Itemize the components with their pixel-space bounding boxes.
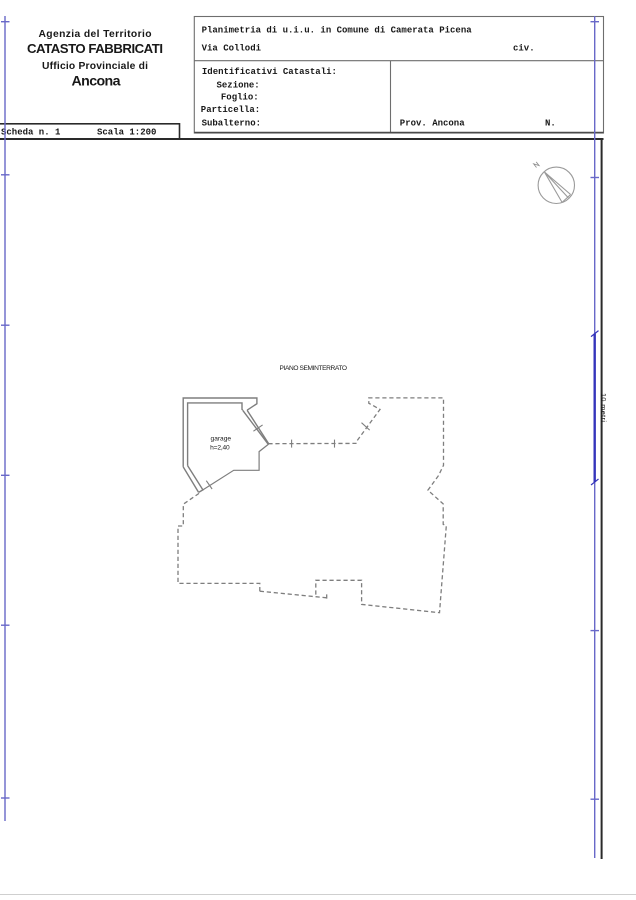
svg-text:Scheda n. 1: Scheda n. 1 xyxy=(1,127,61,137)
svg-text:garage: garage xyxy=(211,436,232,443)
svg-text:CATASTO FABBRICATI: CATASTO FABBRICATI xyxy=(27,41,163,56)
svg-text:h=2,40: h=2,40 xyxy=(210,445,230,452)
svg-text:Particella:: Particella: xyxy=(201,105,260,115)
svg-text:N.: N. xyxy=(545,119,556,129)
svg-text:Via Collodi: Via Collodi xyxy=(202,44,262,54)
svg-text:Agenzia del Territorio: Agenzia del Territorio xyxy=(39,29,152,40)
svg-text:Sezione:: Sezione: xyxy=(217,80,260,90)
svg-text:Subalterno:: Subalterno: xyxy=(202,119,261,129)
svg-text:Prov. Ancona: Prov. Ancona xyxy=(400,119,465,129)
svg-text:Foglio:: Foglio: xyxy=(221,92,259,102)
svg-text:civ.: civ. xyxy=(513,44,535,54)
svg-text:Ancona: Ancona xyxy=(72,74,121,90)
svg-text:Scala 1:200: Scala 1:200 xyxy=(97,127,156,137)
svg-text:PIANO SEMINTERRATO: PIANO SEMINTERRATO xyxy=(280,365,348,372)
svg-text:Planimetria di u.i.u. in Comun: Planimetria di u.i.u. in Comune di Camer… xyxy=(202,26,473,36)
svg-text:Ufficio Provinciale di: Ufficio Provinciale di xyxy=(42,61,148,72)
svg-text:10 metri: 10 metri xyxy=(599,393,608,422)
svg-text:Identificativi Catastali:: Identificativi Catastali: xyxy=(202,67,337,77)
